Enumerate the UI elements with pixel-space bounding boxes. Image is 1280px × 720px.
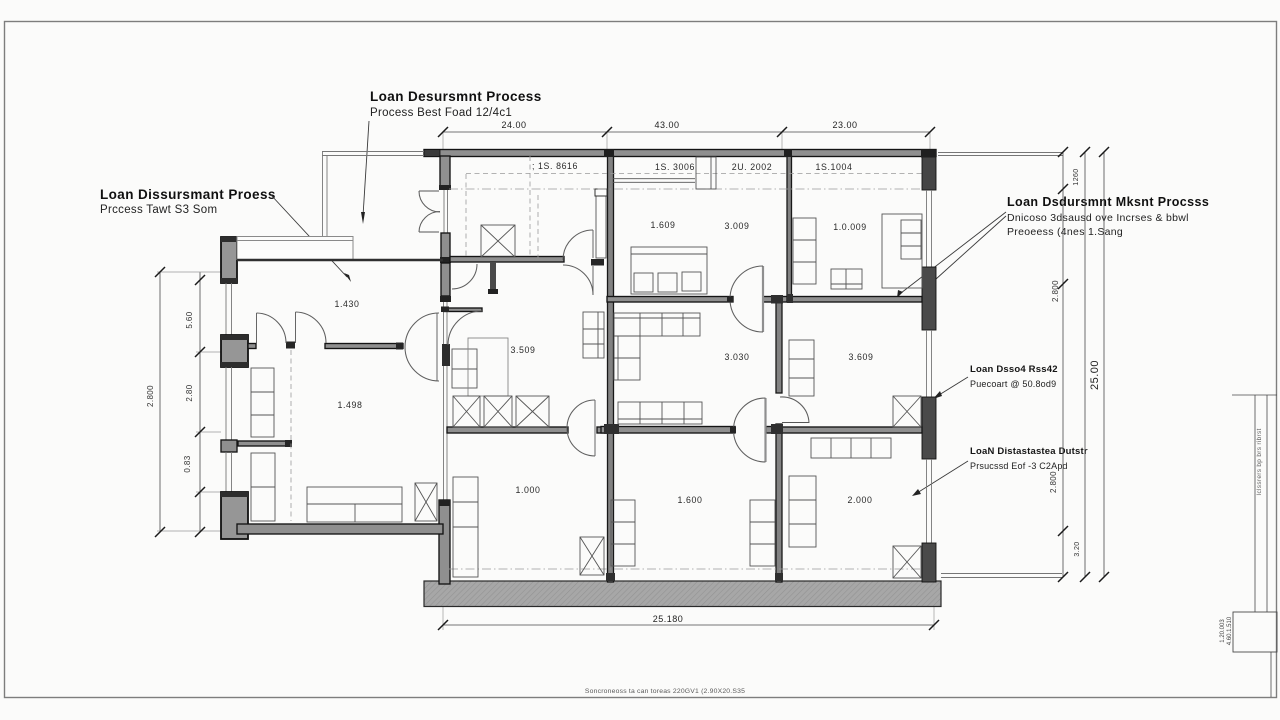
svg-text:1S.1004: 1S.1004 <box>816 162 853 172</box>
svg-text:1.0.009: 1.0.009 <box>833 222 867 232</box>
svg-text:2.800: 2.800 <box>146 385 155 407</box>
svg-text:1260: 1260 <box>1073 168 1080 185</box>
svg-text:1S. 3006: 1S. 3006 <box>655 162 695 172</box>
svg-text:1.20.003: 1.20.003 <box>1220 619 1226 643</box>
svg-text:25.00: 25.00 <box>1089 360 1101 390</box>
svg-text:1.609: 1.609 <box>650 220 675 230</box>
svg-text:Prsucssd Eof -3 C2Apd: Prsucssd Eof -3 C2Apd <box>970 461 1068 471</box>
svg-text:0.83: 0.83 <box>183 455 192 472</box>
svg-text:3.509: 3.509 <box>510 345 535 355</box>
svg-text:Iclssrers bp brs ribrst: Iclssrers bp brs ribrst <box>1256 428 1263 495</box>
svg-text:Prccess Tawt S3 Som: Prccess Tawt S3 Som <box>100 204 217 216</box>
svg-text:2.000: 2.000 <box>847 495 872 505</box>
svg-text:1.498: 1.498 <box>337 400 362 410</box>
svg-text:3.030: 3.030 <box>724 352 749 362</box>
svg-text:1.600: 1.600 <box>677 495 702 505</box>
svg-text:25.180: 25.180 <box>653 614 684 624</box>
svg-text:3.20: 3.20 <box>1074 541 1081 556</box>
svg-text:LoaN Distastastea Dutstr: LoaN Distastastea Dutstr <box>970 446 1088 457</box>
svg-text:Loan Desursmnt Process: Loan Desursmnt Process <box>370 89 542 104</box>
svg-text:3.009: 3.009 <box>724 221 749 231</box>
svg-text:1.000: 1.000 <box>515 485 540 495</box>
svg-text:Puecoart @ 50.8od9: Puecoart @ 50.8od9 <box>970 379 1056 389</box>
svg-text:2.800: 2.800 <box>1051 280 1060 302</box>
svg-text:4.60.1.510: 4.60.1.510 <box>1227 616 1233 645</box>
svg-text:24.00: 24.00 <box>501 120 526 130</box>
svg-text:43.00: 43.00 <box>654 120 679 130</box>
svg-text:Dnicoso 3dsausd ove Incrses &: Dnicoso 3dsausd ove Incrses & bbwl <box>1007 212 1189 224</box>
svg-text:2.800: 2.800 <box>1049 471 1058 493</box>
svg-text:5.60: 5.60 <box>185 311 194 328</box>
svg-text:Soncroneoss ta can toreas 220G: Soncroneoss ta can toreas 220GV1 (2.90X2… <box>585 688 745 695</box>
svg-text:Preoeess (4nes 1.Sang: Preoeess (4nes 1.Sang <box>1007 226 1123 238</box>
svg-text:; 1S. 8616: ; 1S. 8616 <box>532 161 578 171</box>
svg-text:Loan Dsso4 Rss42: Loan Dsso4 Rss42 <box>970 364 1058 375</box>
svg-text:2.80: 2.80 <box>185 384 194 401</box>
svg-text:2U. 2002: 2U. 2002 <box>732 162 773 172</box>
svg-text:1.430: 1.430 <box>334 299 359 309</box>
svg-text:Loan Dsdursmnt Mksnt Procsss: Loan Dsdursmnt Mksnt Procsss <box>1007 195 1209 209</box>
svg-text:Loan Dissursmant Proess: Loan Dissursmant Proess <box>100 187 276 202</box>
svg-text:Process Best Foad 12/4c1: Process Best Foad 12/4c1 <box>370 107 512 119</box>
svg-text:3.609: 3.609 <box>848 352 873 362</box>
svg-text:23.00: 23.00 <box>832 120 857 130</box>
